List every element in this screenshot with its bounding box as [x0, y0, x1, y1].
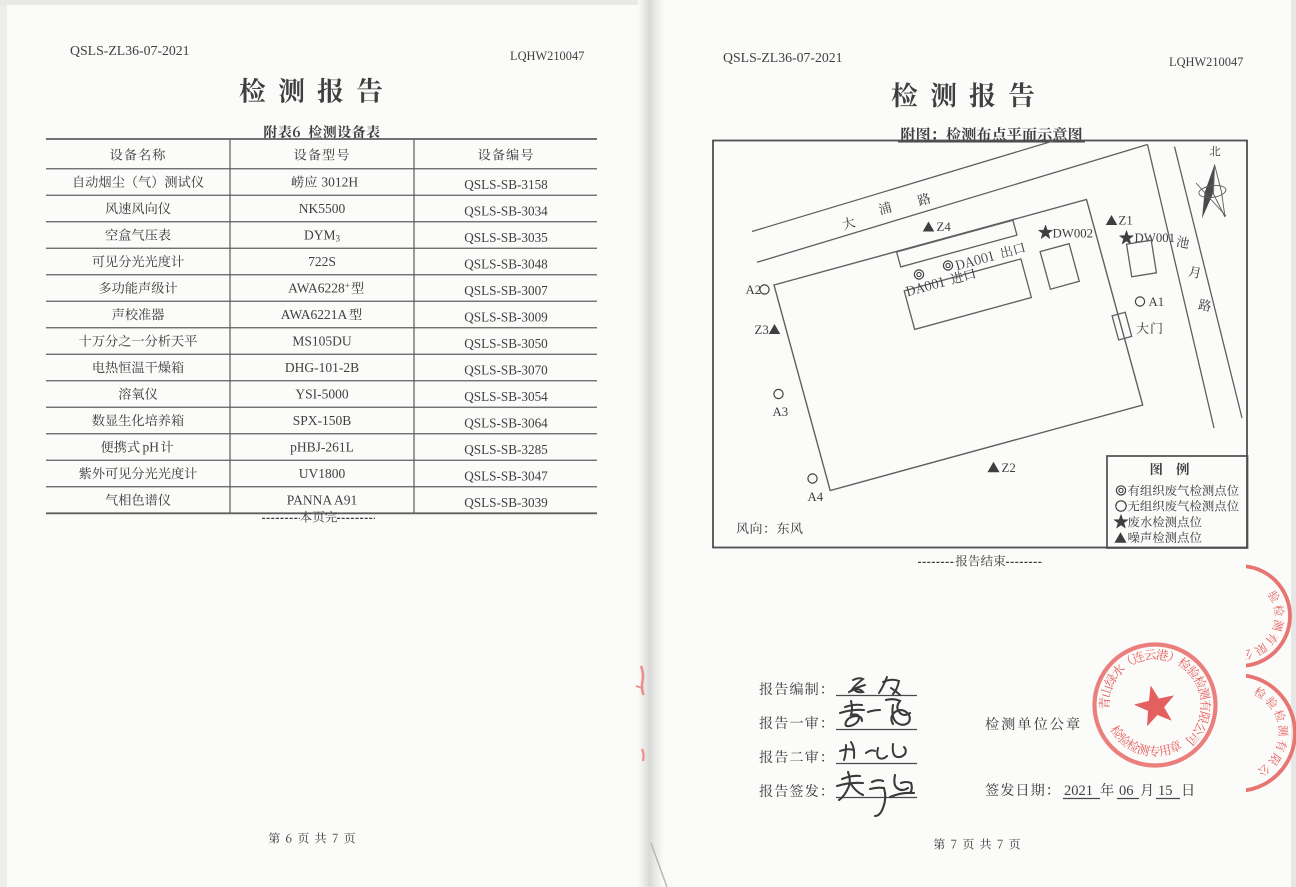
svg-text:2021: 2021	[1064, 783, 1093, 799]
svg-text:QSLS-SB-3007: QSLS-SB-3007	[464, 283, 548, 298]
svg-text:QSLS-ZL36-07-2021: QSLS-ZL36-07-2021	[723, 50, 843, 65]
svg-text:QSLS-SB-3048: QSLS-SB-3048	[464, 256, 548, 271]
svg-text:QSLS-SB-3050: QSLS-SB-3050	[464, 336, 548, 351]
svg-text:QSLS-SB-3035: QSLS-SB-3035	[464, 230, 548, 245]
svg-text:A3: A3	[773, 405, 789, 419]
svg-text:A4: A4	[808, 490, 824, 504]
svg-text:QSLS-SB-3285: QSLS-SB-3285	[464, 442, 548, 457]
svg-text:3012H: 3012H	[321, 175, 358, 190]
svg-text:QSLS-SB-3054: QSLS-SB-3054	[464, 389, 548, 404]
svg-text:Z4: Z4	[937, 220, 952, 234]
svg-text:SPX-150B: SPX-150B	[293, 413, 352, 428]
svg-text:Z3: Z3	[755, 323, 769, 337]
svg-text:LQHW210047: LQHW210047	[1169, 55, 1243, 69]
svg-text:MS105DU: MS105DU	[292, 334, 352, 349]
svg-text:QSLS-SB-3039: QSLS-SB-3039	[464, 495, 548, 510]
svg-text:QSLS-ZL36-07-2021: QSLS-ZL36-07-2021	[70, 43, 190, 58]
svg-text:06: 06	[1119, 783, 1134, 799]
svg-text:QSLS-SB-3070: QSLS-SB-3070	[464, 362, 548, 377]
svg-text:AWA6228+: AWA6228+	[288, 281, 350, 296]
svg-text:DHG-101-2B: DHG-101-2B	[285, 360, 359, 375]
svg-text:722S: 722S	[308, 254, 336, 269]
svg-text:A2: A2	[746, 283, 762, 297]
svg-text:DYM3: DYM3	[304, 228, 341, 244]
svg-text:PANNA A91: PANNA A91	[287, 493, 357, 508]
svg-text:15: 15	[1158, 783, 1173, 799]
svg-text:DW001: DW001	[1135, 231, 1176, 245]
svg-text:Z1: Z1	[1119, 214, 1133, 228]
svg-text:pH: pH	[143, 440, 160, 455]
svg-text:LQHW210047: LQHW210047	[510, 49, 584, 63]
svg-text:Z2: Z2	[1002, 461, 1016, 475]
svg-text:AWA6221A: AWA6221A	[281, 307, 348, 322]
svg-text:pHBJ-261L: pHBJ-261L	[290, 440, 354, 455]
svg-text:A1: A1	[1149, 295, 1165, 309]
svg-text:NK5500: NK5500	[299, 201, 346, 216]
svg-text:QSLS-SB-3064: QSLS-SB-3064	[464, 415, 548, 430]
svg-text:QSLS-SB-3047: QSLS-SB-3047	[464, 468, 548, 483]
svg-text:QSLS-SB-3034: QSLS-SB-3034	[464, 203, 548, 218]
svg-text:QSLS-SB-3009: QSLS-SB-3009	[464, 309, 548, 324]
svg-text:QSLS-SB-3158: QSLS-SB-3158	[464, 177, 548, 192]
svg-text:UV1800: UV1800	[299, 466, 346, 481]
svg-text:YSI-5000: YSI-5000	[295, 387, 348, 402]
svg-text:DW002: DW002	[1053, 227, 1094, 241]
